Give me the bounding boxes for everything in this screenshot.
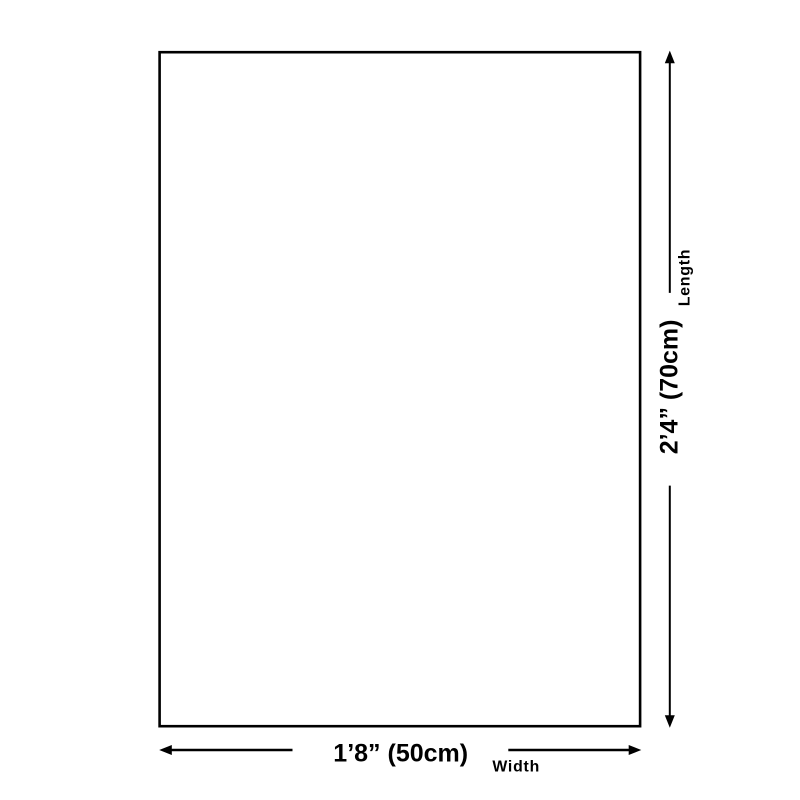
svg-text:Width: Width: [492, 759, 540, 776]
svg-text:1’8” (50cm): 1’8” (50cm): [333, 740, 468, 768]
svg-text:2’4” (70cm): 2’4” (70cm): [656, 320, 684, 455]
svg-text:Length: Length: [676, 249, 693, 307]
